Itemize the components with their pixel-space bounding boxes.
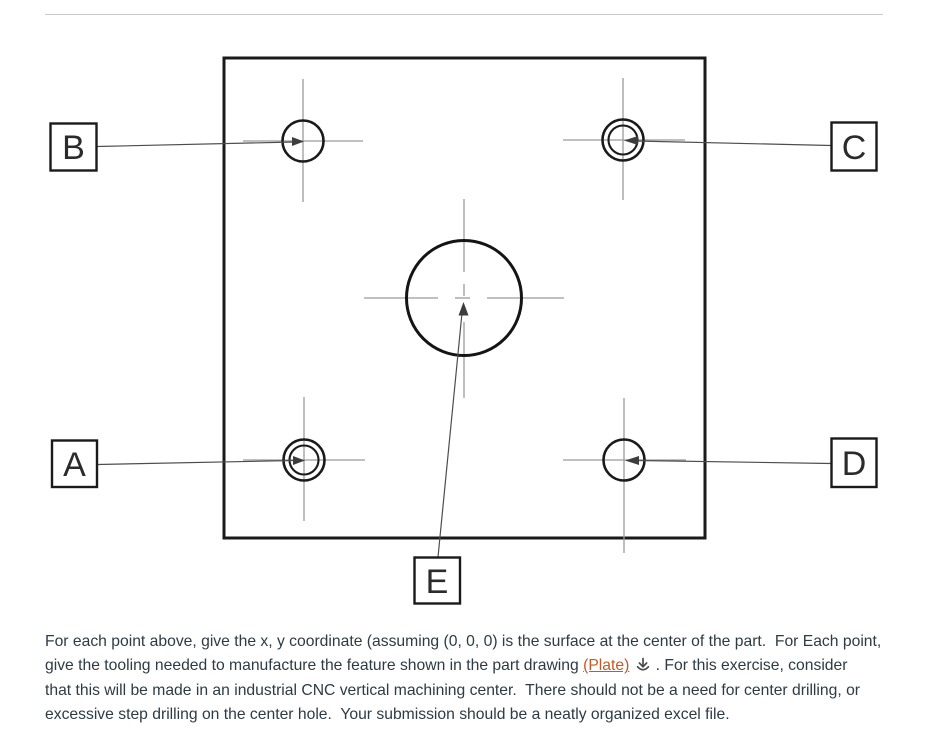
hole-a [243,397,365,521]
download-icon[interactable] [635,656,651,673]
callout-d: D [832,439,877,488]
plate-file-link[interactable]: (Plate) [583,657,629,674]
callout-d-letter: D [842,445,867,483]
assignment-line-2-pre: give the tooling needed to manufacture t… [45,657,583,674]
assignment-line-2: give the tooling needed to manufacture t… [45,654,905,678]
hole-b [243,79,363,202]
hole-d [563,398,686,553]
leader-a-arrow [293,456,305,465]
leader-a [98,461,294,465]
leader-d-arrow [625,456,639,465]
callout-a: A [52,441,97,488]
leader-c [636,141,831,146]
assignment-text: For each point above, give the x, y coor… [45,630,905,728]
assignment-line-4: excessive step drilling on the center ho… [45,703,905,727]
callout-c-letter: C [842,129,867,167]
callout-e: E [415,558,461,604]
hole-e-center [364,199,564,398]
callout-e-letter: E [426,563,449,601]
leader-b [97,142,295,147]
callout-a-letter: A [63,446,86,484]
callout-b: B [51,124,97,171]
assignment-line-2-post: . For this exercise, consider [651,657,847,674]
leader-b-arrow [292,137,304,146]
callout-b-letter: B [62,129,85,167]
assignment-line-1: For each point above, give the x, y coor… [45,630,905,654]
leader-d [637,461,831,464]
leader-c-arrow [624,136,638,145]
leader-e-arrow [459,302,469,316]
part-drawing: B C A D E [0,0,941,620]
callout-c: C [832,123,877,171]
assignment-line-3: that this will be made in an industrial … [45,679,905,703]
hole-c [563,78,685,200]
